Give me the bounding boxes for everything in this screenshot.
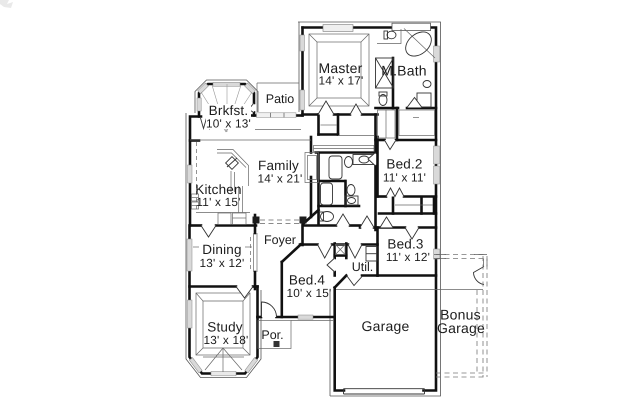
svg-text:M.Bath: M.Bath: [381, 63, 427, 79]
svg-text:Dining: Dining: [202, 242, 241, 257]
svg-text:Por.: Por.: [261, 328, 283, 342]
svg-text:Garage: Garage: [437, 320, 485, 336]
svg-text:14' x 17': 14' x 17': [318, 74, 363, 88]
svg-text:11' x 11': 11' x 11': [383, 171, 426, 185]
svg-text:Patio: Patio: [266, 92, 295, 106]
svg-text:Util.: Util.: [352, 260, 374, 274]
svg-text:13' x 18': 13' x 18': [203, 333, 248, 347]
svg-text:11' x 15': 11' x 15': [196, 195, 240, 209]
svg-text:10' x 15': 10' x 15': [286, 286, 331, 300]
svg-text:13' x 12': 13' x 12': [199, 256, 244, 270]
svg-text:Foyer: Foyer: [264, 233, 296, 247]
svg-text:11' x 12': 11' x 12': [386, 250, 430, 264]
svg-text:14' x 21': 14' x 21': [257, 172, 302, 186]
svg-text:Garage: Garage: [362, 318, 410, 334]
svg-text:10' x 13': 10' x 13': [206, 117, 251, 131]
svg-text:Bed.2: Bed.2: [386, 157, 422, 172]
